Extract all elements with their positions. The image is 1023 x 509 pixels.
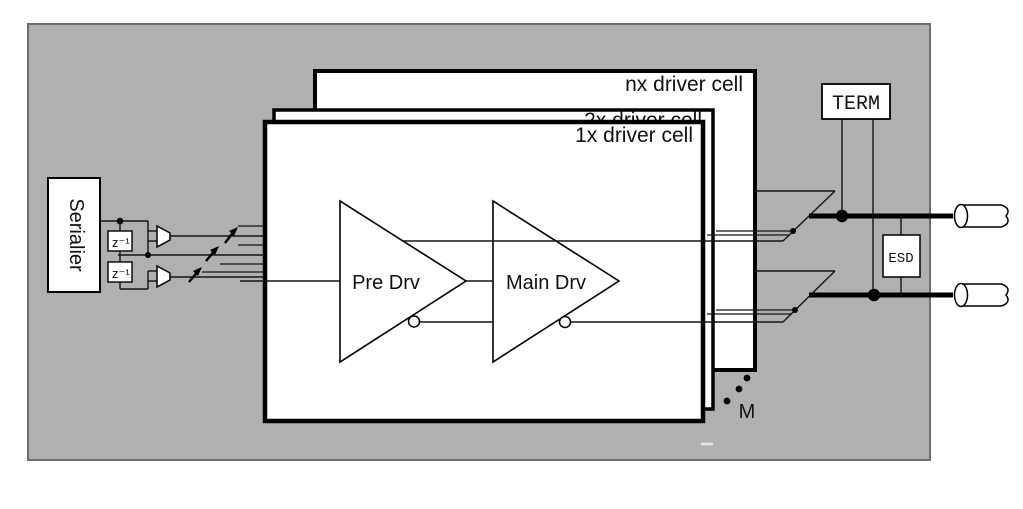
- coax-body: [962, 284, 1008, 306]
- repeat-dot: [724, 398, 731, 405]
- junction-dot: [792, 307, 798, 313]
- multiplier-label: M: [739, 401, 756, 423]
- driver-cell-front-label: 1x driver cell: [575, 124, 693, 147]
- repeat-dot: [744, 375, 751, 382]
- esd-label: ESD: [888, 251, 913, 267]
- repeat-dot: [736, 386, 743, 393]
- delay-z1-label: z⁻¹: [112, 235, 130, 250]
- inverter-bubble: [409, 316, 420, 327]
- pre-driver-label: Pre Drv: [352, 272, 420, 294]
- coax-opening: [955, 205, 968, 228]
- junction-dot: [790, 228, 796, 234]
- driver-cell-back-label: nx driver cell: [625, 73, 743, 96]
- inverter-bubble: [560, 317, 571, 328]
- coax-connector-upper: [955, 205, 1009, 228]
- driver-architecture-diagram: nx driver cell 2x driver cell 1x driver …: [0, 0, 1023, 509]
- main-driver-label: Main Drv: [506, 272, 586, 294]
- serializer-label: Serialier: [65, 198, 87, 272]
- delay-z2-label: z⁻¹: [112, 266, 130, 281]
- coax-body: [962, 205, 1008, 227]
- coax-connector-lower: [955, 284, 1009, 307]
- term-label: TERM: [832, 93, 880, 116]
- driver-cell-front-box: [265, 122, 703, 421]
- coax-opening: [955, 284, 968, 307]
- junction-dot: [868, 289, 880, 301]
- diagram-canvas: nx driver cell 2x driver cell 1x driver …: [0, 0, 1023, 509]
